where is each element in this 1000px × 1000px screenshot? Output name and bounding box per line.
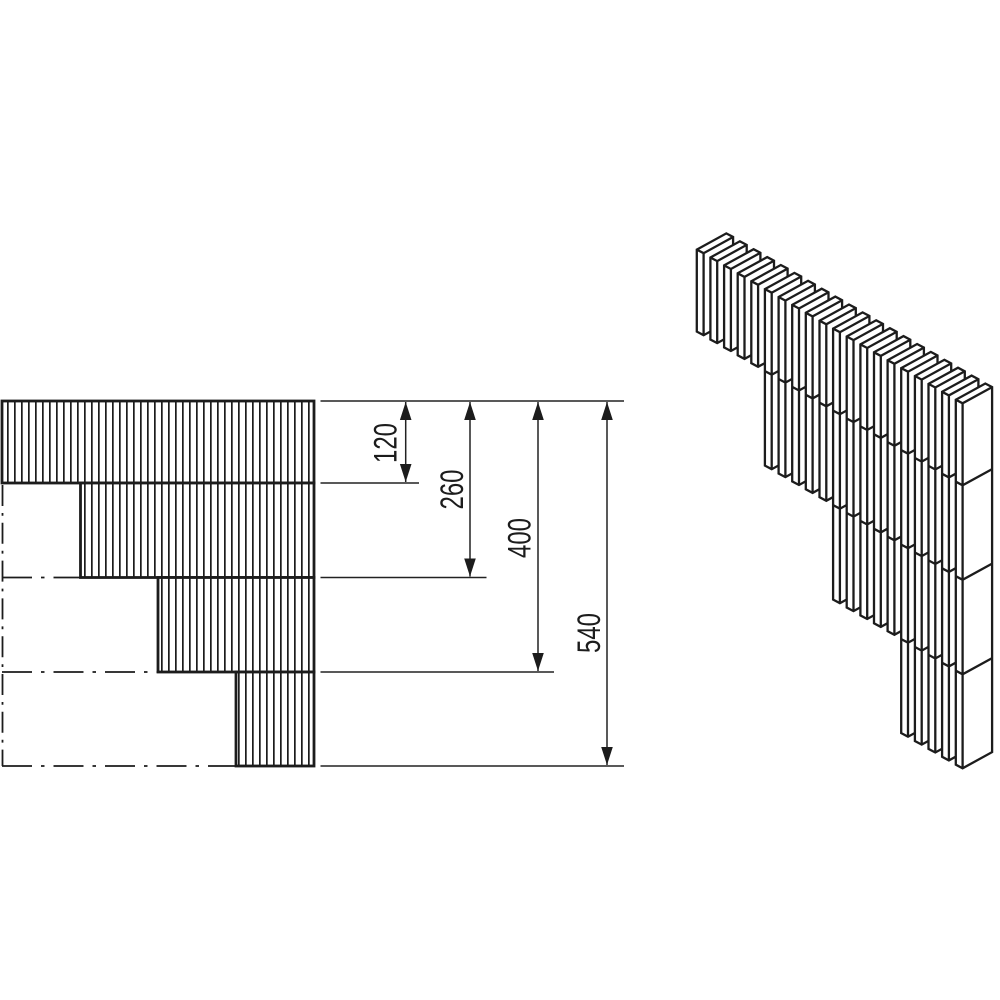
svg-text:120: 120	[367, 423, 403, 463]
svg-text:400: 400	[501, 518, 537, 558]
svg-text:260: 260	[434, 470, 470, 510]
svg-text:540: 540	[571, 613, 607, 653]
